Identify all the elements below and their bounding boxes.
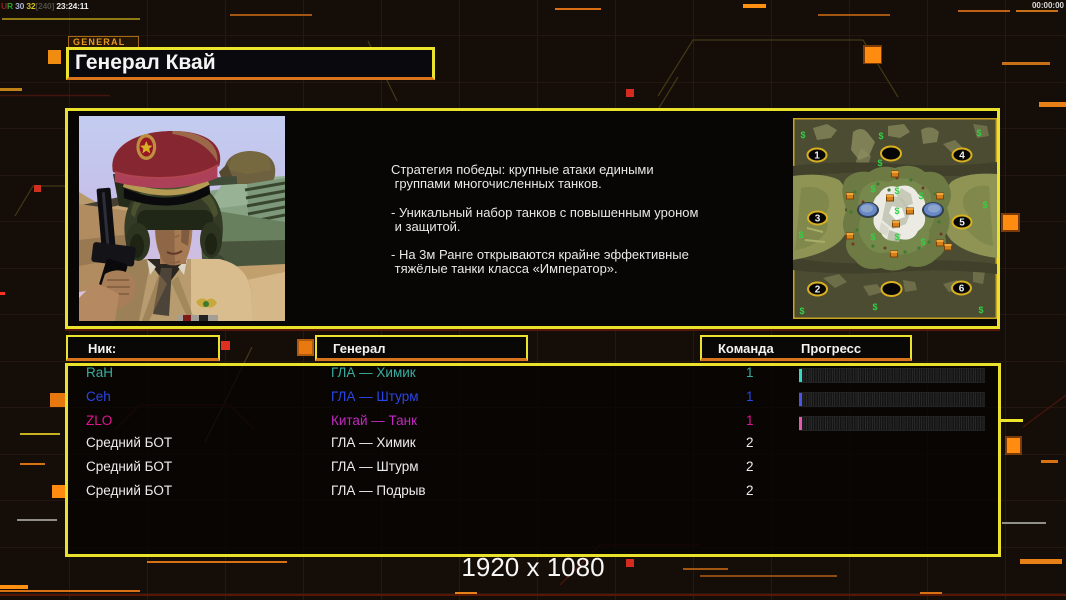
svg-text:$: $ xyxy=(920,237,925,247)
svg-text:$: $ xyxy=(918,191,923,201)
svg-text:1: 1 xyxy=(814,151,820,162)
svg-text:$: $ xyxy=(978,305,983,315)
svg-text:$: $ xyxy=(870,232,875,242)
svg-text:$: $ xyxy=(976,128,981,138)
svg-text:$: $ xyxy=(798,230,803,240)
svg-text:$: $ xyxy=(894,232,899,242)
svg-text:$: $ xyxy=(894,206,899,216)
svg-text:$: $ xyxy=(799,306,804,316)
svg-text:$: $ xyxy=(877,158,882,168)
svg-text:5: 5 xyxy=(959,218,965,229)
svg-text:$: $ xyxy=(894,186,899,196)
svg-text:$: $ xyxy=(878,131,883,141)
svg-text:$: $ xyxy=(870,184,875,194)
svg-text:3: 3 xyxy=(815,214,821,225)
svg-text:6: 6 xyxy=(959,284,965,295)
svg-text:$: $ xyxy=(800,130,805,140)
svg-text:$: $ xyxy=(872,302,877,312)
svg-text:$: $ xyxy=(982,200,987,210)
svg-text:4: 4 xyxy=(959,151,965,162)
svg-text:2: 2 xyxy=(815,285,821,296)
